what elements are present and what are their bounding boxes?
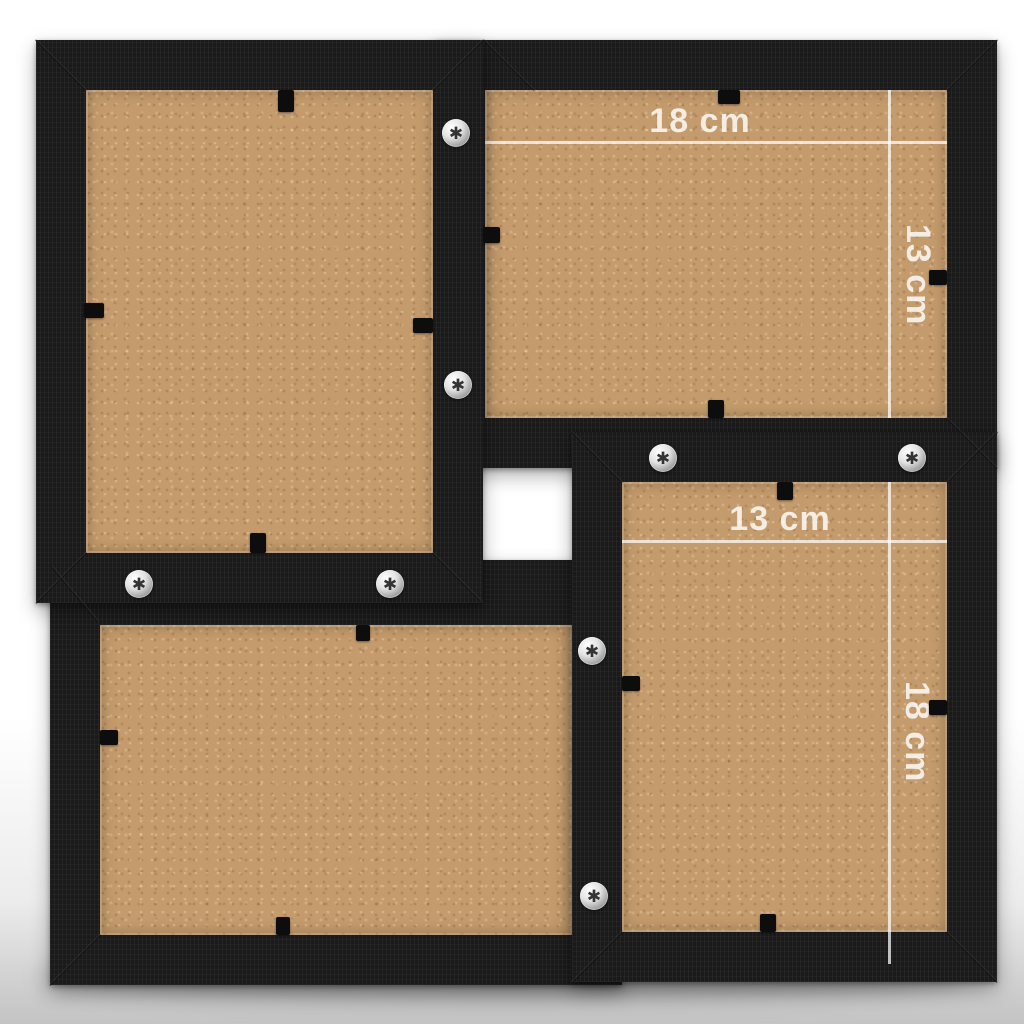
screw-icon: ✱ <box>649 444 677 472</box>
rotating-tab-icon <box>622 676 640 691</box>
dimension-line-horizontal <box>485 141 947 144</box>
dimension-line-vertical <box>888 482 891 964</box>
screw-icon: ✱ <box>442 119 470 147</box>
rotating-tab-icon <box>413 318 433 333</box>
dimension-label-height: 18 cm <box>892 612 936 852</box>
screw-icon: ✱ <box>125 570 153 598</box>
screw-icon: ✱ <box>376 570 404 598</box>
rotating-tab-icon <box>708 400 724 418</box>
frame-bottom-left-backing-board <box>100 625 572 935</box>
frame-bottom-left <box>50 560 622 985</box>
rotating-tab-icon <box>278 90 294 112</box>
rotating-tab-icon <box>929 700 947 715</box>
screw-icon: ✱ <box>578 637 606 665</box>
dimension-label-width: 18 cm <box>610 102 790 141</box>
dimension-line-vertical <box>888 90 891 418</box>
rotating-tab-icon <box>356 625 370 641</box>
screw-icon: ✱ <box>580 882 608 910</box>
rotating-tab-icon <box>250 533 266 553</box>
rotating-tab-icon <box>84 303 104 318</box>
screw-icon: ✱ <box>898 444 926 472</box>
rotating-tab-icon <box>760 914 776 932</box>
screw-icon: ✱ <box>444 371 472 399</box>
frame-top-left-backing-board <box>86 90 433 553</box>
dimension-line-horizontal <box>622 540 947 543</box>
rotating-tab-icon <box>100 730 118 745</box>
rotating-tab-icon <box>777 482 793 500</box>
rotating-tab-icon <box>929 270 947 285</box>
product-photo-stage: 18 cm 13 cm 13 cm 18 cm ✱✱✱✱✱✱✱✱ <box>0 0 1024 1024</box>
rotating-tab-icon <box>276 917 290 935</box>
rotating-tab-icon <box>718 90 740 104</box>
dimension-label-width: 13 cm <box>690 500 870 539</box>
rotating-tab-icon <box>483 227 500 243</box>
